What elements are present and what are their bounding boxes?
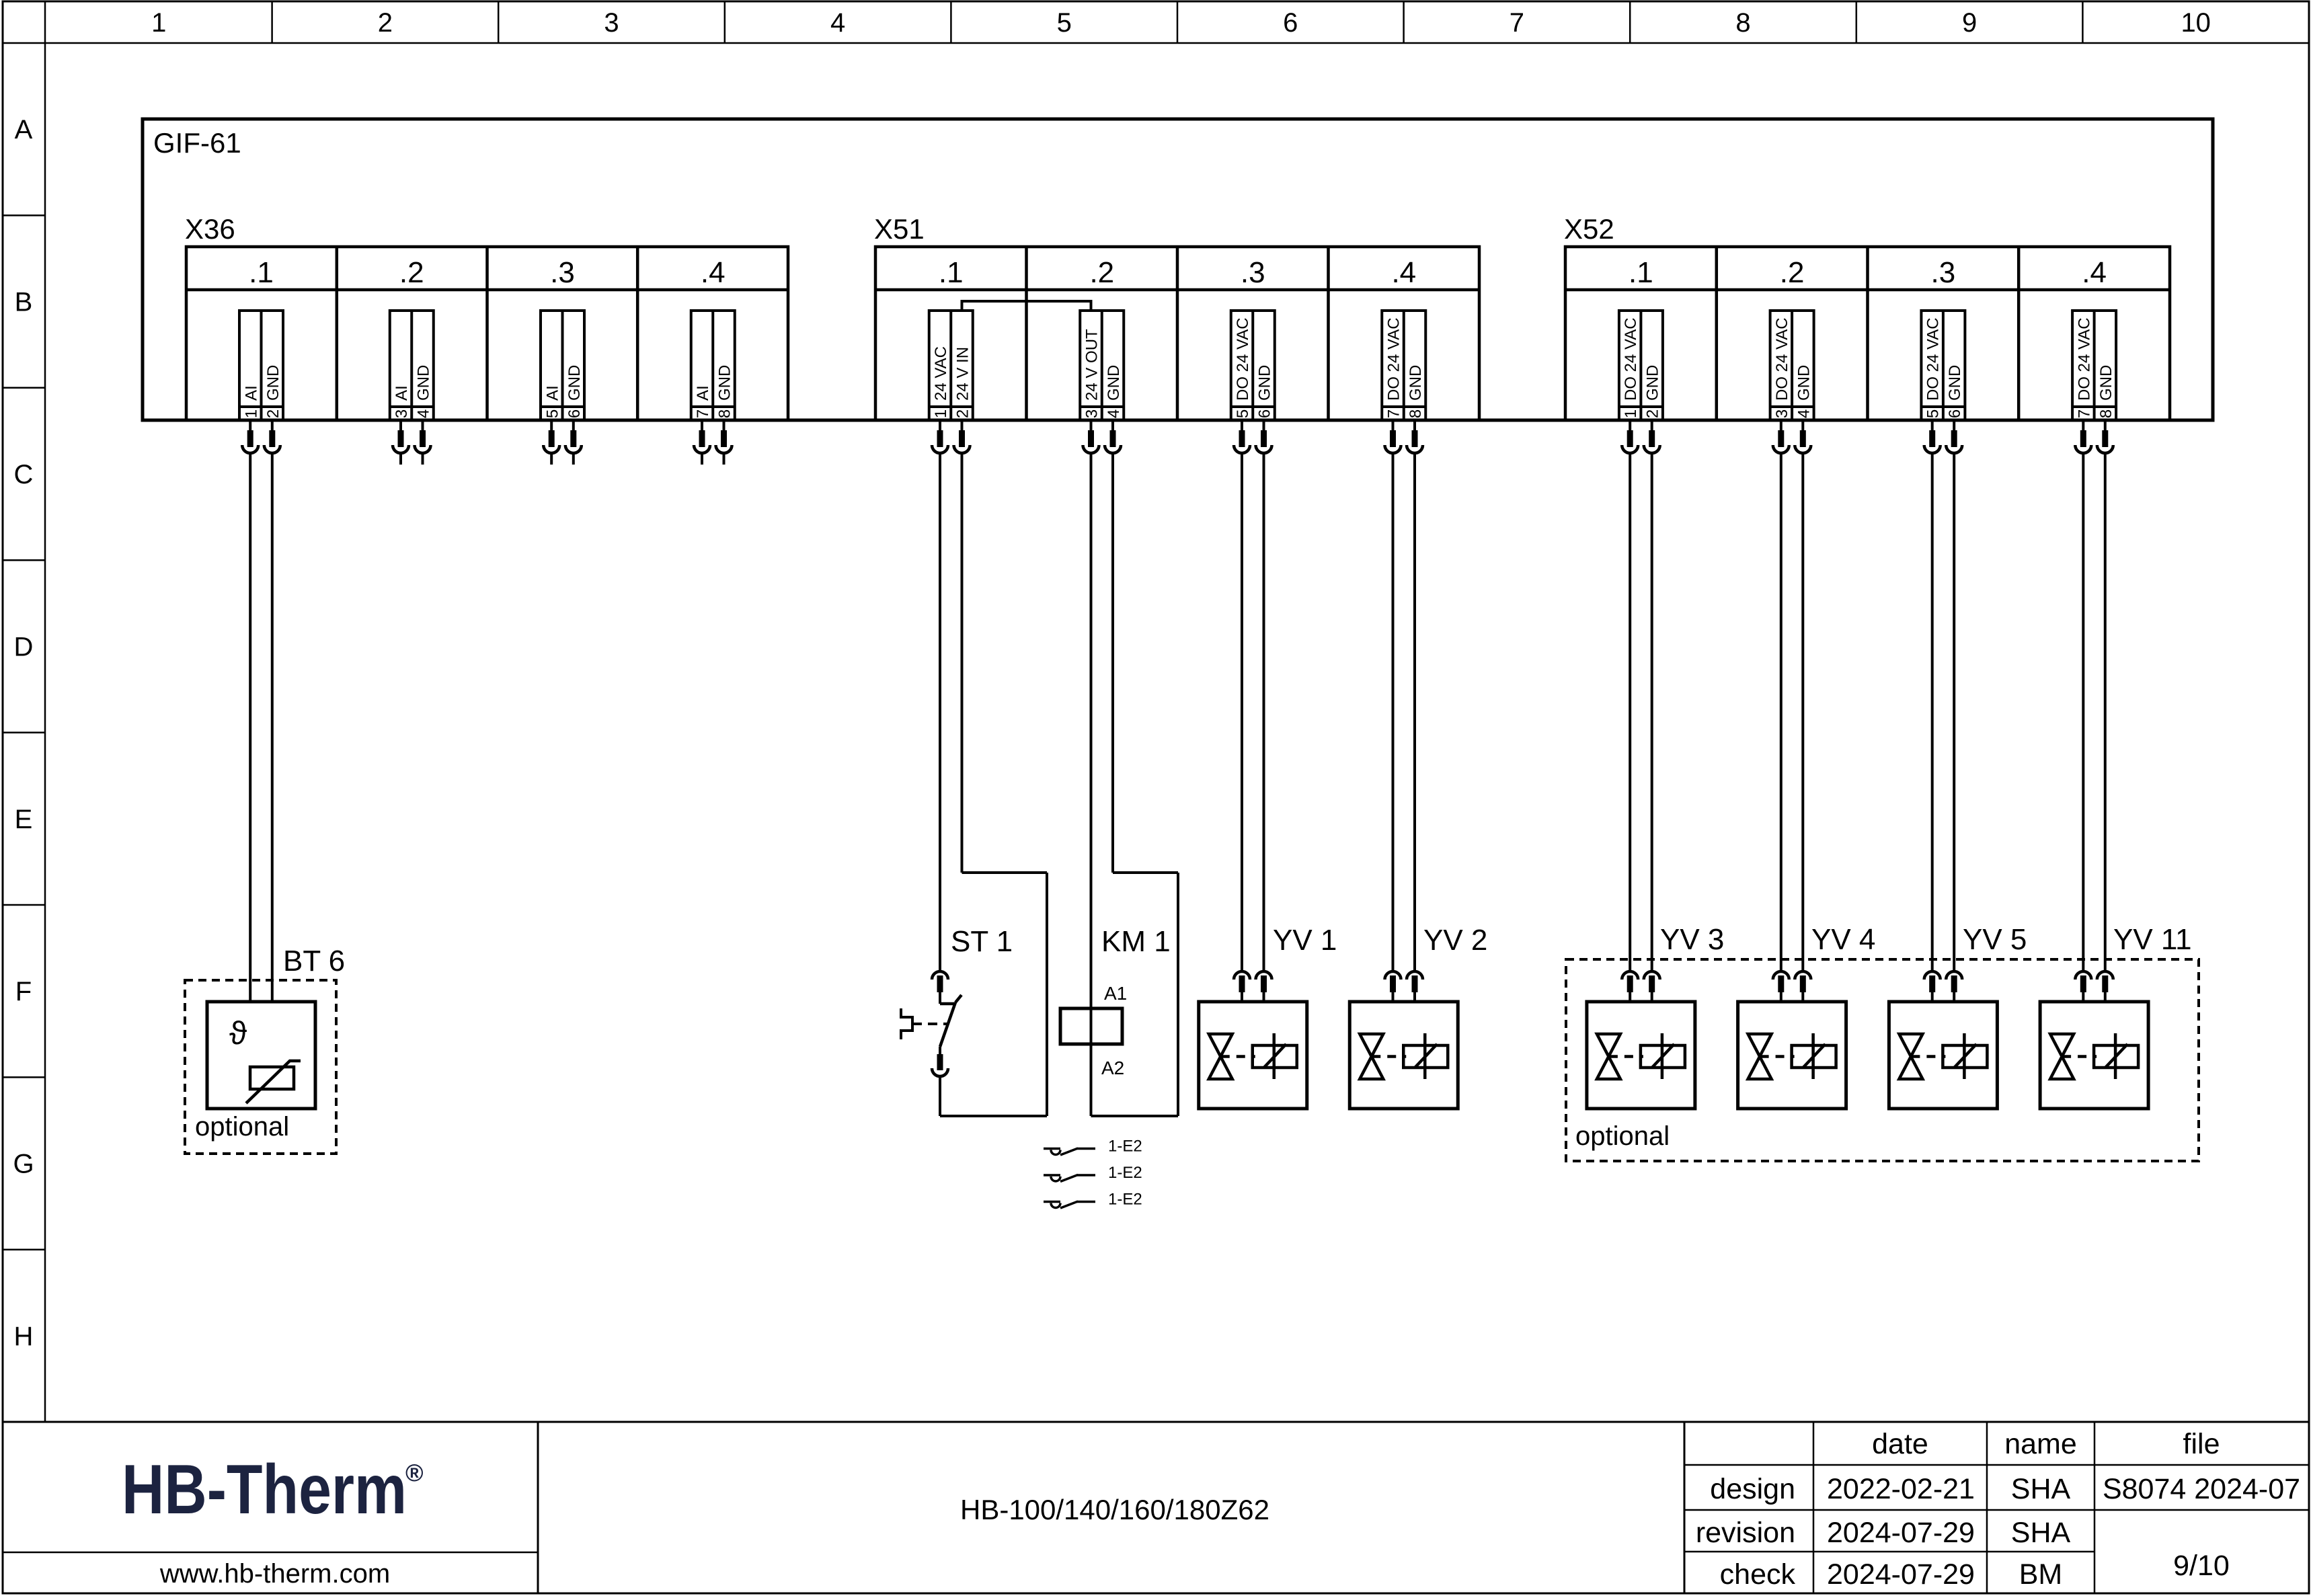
svg-text:GND: GND: [2097, 365, 2115, 401]
svg-text:DO 24 VAC: DO 24 VAC: [2075, 317, 2093, 401]
svg-text:2: 2: [264, 409, 282, 418]
svg-text:.4: .4: [1391, 256, 1416, 289]
svg-text:6: 6: [1946, 409, 1964, 418]
svg-text:.2: .2: [399, 256, 424, 289]
svg-text:3: 3: [1773, 409, 1791, 418]
svg-text:GND: GND: [1946, 365, 1964, 401]
svg-text:10: 10: [2181, 8, 2211, 38]
svg-text:24 V OUT: 24 V OUT: [1083, 329, 1101, 401]
svg-text:8: 8: [2097, 409, 2115, 418]
svg-text:6: 6: [1283, 8, 1298, 38]
svg-text:.1: .1: [939, 256, 964, 289]
svg-text:YV 2: YV 2: [1423, 924, 1487, 957]
svg-text:1: 1: [242, 409, 260, 418]
svg-text:X36: X36: [185, 213, 235, 245]
svg-text:2022-02-21: 2022-02-21: [1827, 1473, 1975, 1505]
svg-text:B: B: [15, 288, 33, 317]
svg-text:design: design: [1710, 1473, 1795, 1505]
svg-text:2024-07-29: 2024-07-29: [1827, 1558, 1975, 1591]
svg-text:S8074 2024-07: S8074 2024-07: [2103, 1473, 2300, 1505]
svg-text:HB-100/140/160/180Z62: HB-100/140/160/180Z62: [960, 1494, 1269, 1525]
svg-text:8: 8: [716, 409, 734, 418]
svg-text:H: H: [14, 1322, 34, 1351]
svg-text:GND: GND: [1795, 365, 1813, 401]
svg-text:2: 2: [378, 8, 393, 38]
svg-text:YV 4: YV 4: [1811, 923, 1875, 956]
svg-text:1: 1: [151, 8, 166, 38]
svg-text:1: 1: [1622, 409, 1640, 418]
svg-text:7: 7: [1385, 409, 1403, 418]
svg-text:®: ®: [405, 1459, 424, 1486]
svg-text:1-E2: 1-E2: [1108, 1191, 1142, 1209]
svg-text:optional: optional: [195, 1112, 289, 1142]
svg-text:AI: AI: [393, 385, 411, 401]
svg-text:6: 6: [565, 409, 584, 418]
svg-text:name: name: [2004, 1428, 2077, 1460]
svg-text:.1: .1: [1629, 256, 1653, 289]
svg-text:X52: X52: [1564, 213, 1614, 245]
svg-text:GND: GND: [1644, 365, 1662, 401]
svg-text:SHA: SHA: [2011, 1517, 2071, 1549]
svg-text:check: check: [1720, 1558, 1796, 1591]
svg-text:1: 1: [932, 409, 950, 418]
svg-text:AI: AI: [543, 385, 561, 401]
svg-text:6: 6: [1256, 409, 1274, 418]
svg-text:AI: AI: [694, 385, 712, 401]
svg-text:date: date: [1872, 1428, 1928, 1460]
svg-text:GND: GND: [415, 365, 433, 401]
svg-text:24 V IN: 24 V IN: [954, 347, 972, 401]
svg-text:2: 2: [1644, 409, 1662, 418]
svg-text:YV 11: YV 11: [2113, 923, 2192, 956]
svg-text:4: 4: [830, 8, 845, 38]
svg-text:GIF-61: GIF-61: [153, 127, 241, 159]
svg-text:1-E2: 1-E2: [1108, 1138, 1142, 1156]
svg-text:3: 3: [393, 409, 411, 418]
svg-text:DO 24 VAC: DO 24 VAC: [1622, 317, 1640, 401]
svg-text:.2: .2: [1780, 256, 1805, 289]
svg-text:F: F: [15, 977, 32, 1006]
svg-text:.3: .3: [1931, 256, 1956, 289]
svg-text:.4: .4: [2082, 256, 2107, 289]
svg-text:AI: AI: [242, 385, 260, 401]
svg-text:GND: GND: [1407, 365, 1425, 401]
svg-text:DO 24 VAC: DO 24 VAC: [1924, 317, 1943, 401]
svg-text:7: 7: [2075, 409, 2093, 418]
svg-text:3: 3: [604, 8, 619, 38]
svg-text:KM 1: KM 1: [1101, 925, 1171, 958]
svg-text:HB-Therm: HB-Therm: [122, 1451, 407, 1529]
svg-text:BM: BM: [2019, 1558, 2063, 1591]
svg-text:.1: .1: [249, 256, 274, 289]
svg-text:SHA: SHA: [2011, 1473, 2071, 1505]
svg-text:file: file: [2183, 1428, 2220, 1460]
svg-text:.3: .3: [1241, 256, 1265, 289]
svg-text:BT 6: BT 6: [283, 945, 345, 977]
svg-text:5: 5: [1924, 409, 1943, 418]
svg-text:8: 8: [1407, 409, 1425, 418]
svg-text:9: 9: [1962, 8, 1977, 38]
svg-text:www.hb-therm.com: www.hb-therm.com: [159, 1559, 390, 1589]
svg-text:2024-07-29: 2024-07-29: [1827, 1517, 1975, 1549]
svg-text:4: 4: [1795, 409, 1813, 418]
svg-text:D: D: [14, 632, 34, 662]
svg-text:X51: X51: [874, 213, 925, 245]
svg-text:G: G: [13, 1150, 34, 1179]
svg-text:GND: GND: [1105, 365, 1123, 401]
svg-text:5: 5: [1234, 409, 1252, 418]
svg-text:GND: GND: [264, 365, 282, 401]
svg-text:GND: GND: [1256, 365, 1274, 401]
svg-text:GND: GND: [565, 365, 584, 401]
svg-text:3: 3: [1083, 409, 1101, 418]
svg-text:ϑ: ϑ: [229, 1016, 247, 1051]
svg-text:5: 5: [543, 409, 561, 418]
svg-text:.2: .2: [1089, 256, 1114, 289]
svg-text:DO 24 VAC: DO 24 VAC: [1385, 317, 1403, 401]
svg-text:9/10: 9/10: [2173, 1550, 2230, 1582]
svg-text:A2: A2: [1101, 1058, 1124, 1078]
svg-text:E: E: [15, 805, 33, 834]
svg-text:.4: .4: [701, 256, 726, 289]
svg-text:YV 5: YV 5: [1963, 923, 2027, 956]
svg-text:A1: A1: [1104, 983, 1127, 1004]
svg-text:YV 1: YV 1: [1273, 924, 1337, 957]
svg-text:ST 1: ST 1: [951, 925, 1013, 958]
svg-text:revision: revision: [1696, 1517, 1795, 1549]
svg-text:24 VAC: 24 VAC: [932, 346, 950, 401]
svg-text:1-E2: 1-E2: [1108, 1164, 1142, 1182]
svg-text:7: 7: [1510, 8, 1524, 38]
svg-text:A: A: [15, 115, 33, 145]
svg-text:optional: optional: [1575, 1121, 1670, 1151]
svg-text:DO 24 VAC: DO 24 VAC: [1234, 317, 1252, 401]
svg-text:.3: .3: [550, 256, 575, 289]
svg-text:GND: GND: [716, 365, 734, 401]
svg-text:C: C: [14, 460, 34, 489]
svg-text:2: 2: [954, 409, 972, 418]
svg-text:DO 24 VAC: DO 24 VAC: [1773, 317, 1791, 401]
svg-text:5: 5: [1057, 8, 1072, 38]
svg-text:YV 3: YV 3: [1660, 923, 1724, 956]
svg-text:8: 8: [1735, 8, 1750, 38]
svg-text:7: 7: [694, 409, 712, 418]
svg-text:4: 4: [415, 409, 433, 418]
svg-text:4: 4: [1105, 409, 1123, 418]
